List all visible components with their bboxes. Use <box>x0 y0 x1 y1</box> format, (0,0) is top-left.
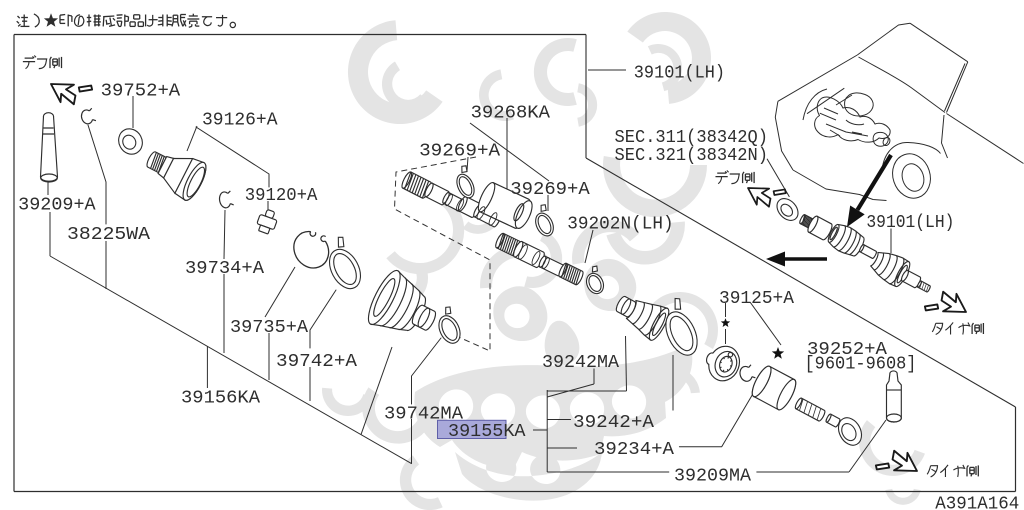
svg-text:39734+A: 39734+A <box>185 259 264 279</box>
svg-text:39126+A: 39126+A <box>202 110 278 130</box>
svg-text:39120+A: 39120+A <box>245 186 318 206</box>
svg-text:39269+A: 39269+A <box>419 142 500 162</box>
svg-text:39242MA: 39242MA <box>542 353 619 373</box>
svg-text:38225WA: 38225WA <box>67 225 150 245</box>
svg-text:39742+A: 39742+A <box>276 352 357 372</box>
svg-text:A391A164: A391A164 <box>935 495 1019 510</box>
svg-text:39242+A: 39242+A <box>573 413 654 433</box>
svg-text:[9601-9608]: [9601-9608] <box>805 355 917 375</box>
svg-text:39269+A: 39269+A <box>510 180 590 200</box>
svg-text:39155KA: 39155KA <box>448 422 526 442</box>
svg-text:39752+A: 39752+A <box>101 82 181 102</box>
svg-text:39125+A: 39125+A <box>719 289 794 309</box>
svg-text:SEC.311(38342Q): SEC.311(38342Q) <box>615 128 769 148</box>
svg-text:39101(LH): 39101(LH) <box>866 213 954 233</box>
svg-text:39735+A: 39735+A <box>230 318 308 338</box>
svg-text:39209MA: 39209MA <box>674 467 751 487</box>
svg-text:39234+A: 39234+A <box>594 440 674 460</box>
svg-text:39268KA: 39268KA <box>471 103 551 123</box>
svg-text:SEC.321(38342N): SEC.321(38342N) <box>615 146 769 166</box>
svg-text:39209+A: 39209+A <box>18 196 96 216</box>
svg-text:39202N(LH): 39202N(LH) <box>567 215 673 235</box>
svg-text:39156KA: 39156KA <box>181 389 260 409</box>
svg-text:39101(LH): 39101(LH) <box>634 64 725 84</box>
